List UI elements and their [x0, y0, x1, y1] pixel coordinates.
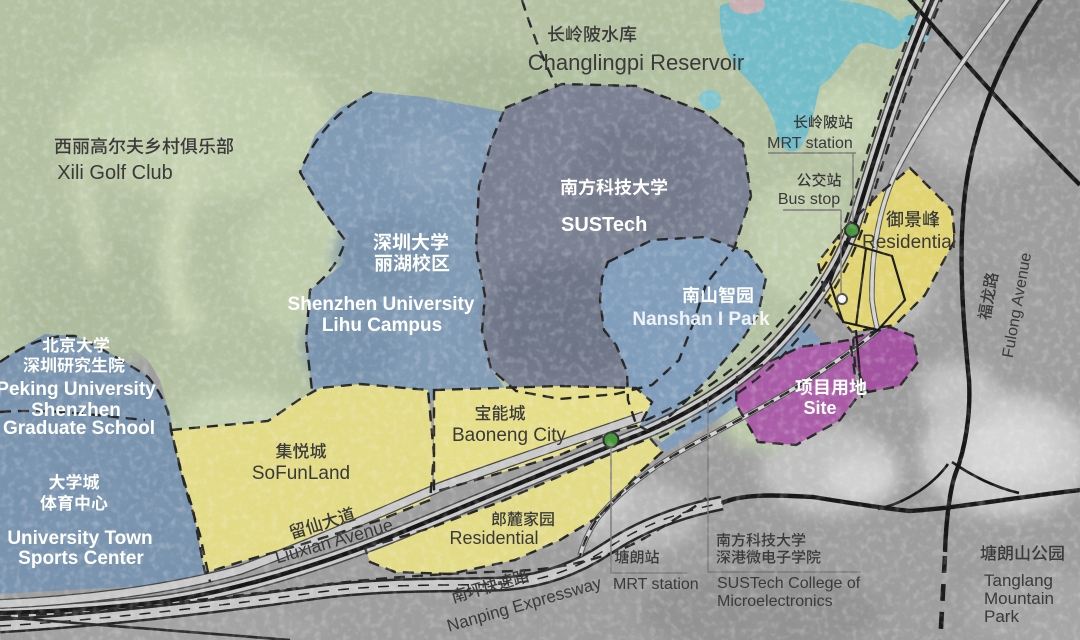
svg-text:SoFunLand: SoFunLand: [252, 463, 350, 484]
svg-text:Shenzhen University: Shenzhen University: [288, 294, 475, 315]
svg-text:Nanshan I Park: Nanshan I Park: [632, 309, 770, 330]
svg-text:Microelectronics: Microelectronics: [717, 593, 833, 610]
svg-text:Residential: Residential: [862, 232, 956, 253]
svg-text:Sports Center: Sports Center: [18, 548, 144, 569]
svg-text:Baoneng City: Baoneng City: [452, 425, 567, 446]
svg-text:Tanglang: Tanglang: [984, 571, 1053, 590]
svg-text:SUSTech: SUSTech: [561, 214, 647, 236]
svg-text:Mountain: Mountain: [984, 589, 1054, 608]
svg-text:Changlingpi Reservoir: Changlingpi Reservoir: [528, 50, 744, 75]
svg-text:SUSTech College of: SUSTech College of: [717, 575, 861, 592]
svg-text:MRT station: MRT station: [767, 135, 853, 152]
svg-text:Peking University: Peking University: [0, 379, 156, 400]
svg-text:Lihu Campus: Lihu Campus: [322, 315, 442, 336]
svg-text:Graduate School: Graduate School: [3, 418, 155, 439]
svg-text:Park: Park: [984, 607, 1019, 626]
svg-text:Site: Site: [803, 398, 836, 418]
svg-text:Residential: Residential: [449, 528, 538, 548]
svg-text:Xili Golf Club: Xili Golf Club: [57, 162, 173, 184]
svg-text:MRT station: MRT station: [613, 576, 699, 593]
svg-text:Bus stop: Bus stop: [778, 191, 840, 208]
svg-text:University Town: University Town: [7, 528, 152, 549]
